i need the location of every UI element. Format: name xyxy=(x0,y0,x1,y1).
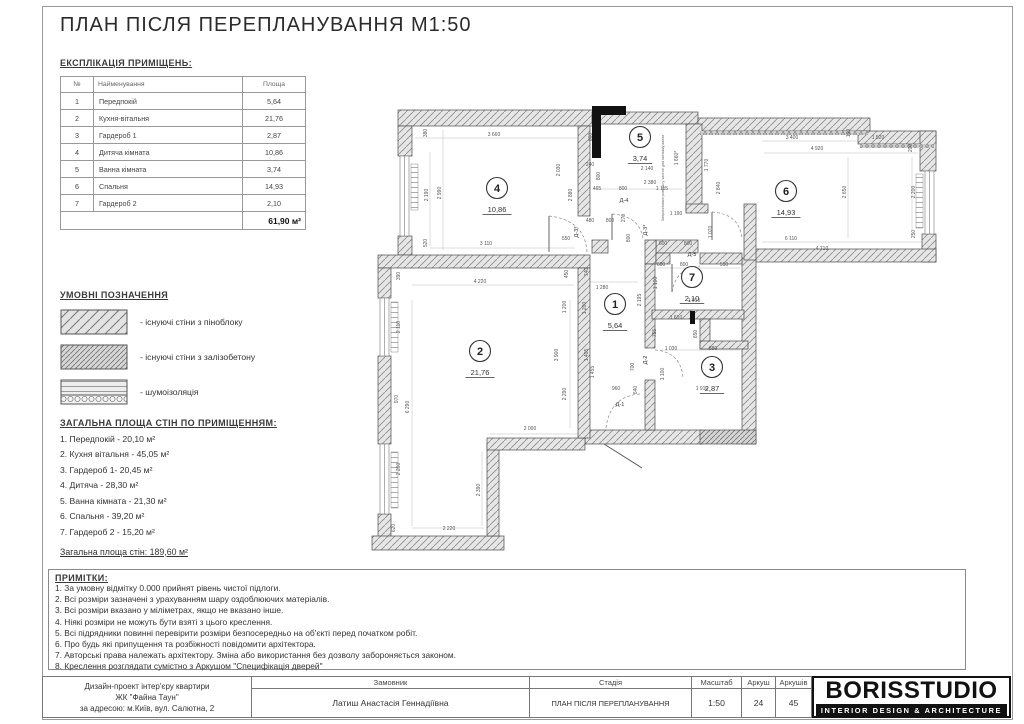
dimension-label: 3 110 xyxy=(480,241,492,247)
room-label: 53,74 xyxy=(628,127,652,164)
dimension-label: 200 xyxy=(908,144,914,153)
dimension-label: 800 xyxy=(684,241,693,247)
dimension-label: 620 xyxy=(391,524,397,533)
sheets-label: Аркушів xyxy=(776,677,811,689)
dimension-label: 250 xyxy=(911,230,917,239)
dimension-label: 860 xyxy=(588,133,594,142)
room-area: 3,74 xyxy=(633,154,648,163)
room-number: 4 xyxy=(494,183,501,195)
wall-areas-section: ЗАГАЛЬНА ПЛОЩА СТІН ПО ПРИМІЩЕННЯМ: 1. П… xyxy=(60,418,330,557)
room-area: 21,76 xyxy=(471,368,490,377)
note-line: 1. За умовну відмітку 0.000 прийнят ріве… xyxy=(55,583,959,594)
room-label: 15,64 xyxy=(603,294,627,331)
client-label: Замовник xyxy=(252,677,529,689)
dimension-label: 880 xyxy=(709,346,718,352)
dimension-label: 2 000 xyxy=(524,426,537,432)
note-line: 2. Всі розміри зазначені з урахуванням ш… xyxy=(55,594,959,605)
sheet-label: Аркуш xyxy=(742,677,775,689)
note-line: 6. Про будь які припущення та розбіжност… xyxy=(55,639,959,650)
room-number: 2 xyxy=(477,346,483,358)
client-cell: Замовник Латиш Анастасія Геннадіївна xyxy=(252,676,530,718)
dimension-label: 1 455 xyxy=(590,366,596,379)
room-label: 614,93 xyxy=(772,181,801,218)
dimension-label: 2 990 xyxy=(437,187,443,200)
dimension-label: 800 xyxy=(596,172,602,181)
table-row: 3Гардероб 12,87 xyxy=(61,127,306,144)
door-label: Д-5 xyxy=(688,252,697,258)
sheets-total-cell: Аркушів 45 xyxy=(776,676,812,718)
dimension-label: 450 xyxy=(564,270,570,279)
room-number: 1 xyxy=(612,299,618,311)
dimension-label: 1 520 xyxy=(872,135,885,141)
client-value: Латиш Анастасія Геннадіївна xyxy=(252,689,529,717)
dimension-label: 1 610 xyxy=(670,315,683,321)
stage-label: Стадія xyxy=(530,677,691,689)
sheets-value: 45 xyxy=(776,689,811,717)
dimension-label: 1 910 xyxy=(688,298,701,304)
door-label: Д-4 xyxy=(620,198,629,204)
room-area: 10,86 xyxy=(488,205,507,214)
sheet-number-cell: Аркуш 24 xyxy=(742,676,776,718)
dimension-label: 550 xyxy=(562,236,571,242)
room-number: 5 xyxy=(637,132,643,144)
dimension-label: 240 xyxy=(586,162,595,168)
dimension-label: 600 xyxy=(659,241,668,247)
dimension-label: 2 110 xyxy=(396,321,402,333)
dimension-label: 6 110 xyxy=(785,236,797,242)
table-row: 7Гардероб 22,10 xyxy=(61,195,306,212)
note-line: 3. Всі розміри вказано у міліметрах, якщ… xyxy=(55,605,959,616)
dimension-label: 1 280 xyxy=(596,285,609,291)
page-title: ПЛАН ПІСЛЯ ПЕРЕПЛАНУВАННЯ М1:50 xyxy=(60,14,472,37)
dimension-label: 3 400 xyxy=(786,135,799,141)
project-line: Дизайн-проект інтер'єру квартири xyxy=(84,681,209,692)
column-header: Площа xyxy=(243,77,306,93)
dimension-label: 2 290 xyxy=(562,388,568,401)
dimension-label: 2 195 xyxy=(637,294,643,307)
dimension-label: 510 xyxy=(720,262,729,268)
total-area: 61,90 м² xyxy=(243,212,306,230)
wall-areas-heading: ЗАГАЛЬНА ПЛОЩА СТІН ПО ПРИМІЩЕННЯМ: xyxy=(60,418,330,428)
dimension-label: 755 xyxy=(652,329,658,338)
dimension-label: 4 920 xyxy=(811,146,824,152)
wall-area-item: 4. Дитяча - 28,30 м² xyxy=(60,480,330,490)
note-line: 8. Креслення розглядати сумістно з Аркуш… xyxy=(55,661,959,672)
dimension-label: 1 910 xyxy=(696,386,709,392)
note-line: 4. Ніякі розміри не можуть бути взяті з … xyxy=(55,617,959,628)
dimension-label: 1 030 xyxy=(665,346,678,352)
floor-plan: 15,64221,7632,87410,8653,74614,9372,103 … xyxy=(365,90,977,572)
wall-area-item: 5. Ванна кімната - 21,30 м² xyxy=(60,496,330,506)
dimension-label: 390 xyxy=(396,272,402,281)
door-label: Д-3* xyxy=(643,224,649,236)
room-label: 221,76 xyxy=(466,341,495,378)
room-number: 3 xyxy=(709,362,715,374)
wall-area-item: 3. Гардероб 1- 20,45 м² xyxy=(60,465,330,475)
room-area: 14,93 xyxy=(777,208,796,217)
table-row: 6Спальня14,93 xyxy=(61,178,306,195)
title-block: Дизайн-проект інтер'єру квартириЖК "Файн… xyxy=(42,676,812,718)
legend-swatch-concrete xyxy=(60,344,128,370)
stage-cell: Стадія ПЛАН ПІСЛЯ ПЕРЕПЛАНУВАННЯ xyxy=(530,676,692,718)
logo-title: BORISSTUDIO xyxy=(814,678,1009,704)
table-total-row: 61,90 м² xyxy=(61,212,306,230)
legend-item: - існуючі стіни з піноблоку xyxy=(60,308,255,335)
table-row: 4Дитяча кімната10,86 xyxy=(61,144,306,161)
dimension-label: 2 030 xyxy=(556,164,562,177)
dimension-label: 600 xyxy=(657,262,666,268)
dimension-label: 480 xyxy=(586,218,595,224)
dimension-label: 1 770 xyxy=(704,159,710,172)
legend-section: УМОВНІ ПОЗНАЧЕННЯ - існуючі стіни з піно… xyxy=(60,290,255,405)
door-label: Д-1 xyxy=(616,402,625,408)
studio-logo: BORISSTUDIO INTERIOR DESIGN & ARCHITECTU… xyxy=(812,676,1011,718)
project-line: за адресою: м.Київ, вул. Салютна, 2 xyxy=(80,703,214,714)
dimension-label: 1 100 xyxy=(660,368,666,381)
project-line: ЖК "Файна Таун" xyxy=(115,692,178,703)
notes-box: ПРИМІТКИ: 1. За умовну відмітку 0.000 пр… xyxy=(48,569,966,670)
dimension-label: 1 190 xyxy=(670,211,683,217)
wall-area-item: 1. Передпокій - 20,10 м² xyxy=(60,434,330,444)
dimension-label: 4 710 xyxy=(816,246,829,252)
dimension-label: 380 xyxy=(423,129,429,138)
wall-area-item: 2. Кухня вітальня - 45,05 м² xyxy=(60,449,330,459)
wall-area-item: 7. Гардероб 2 - 15,20 м² xyxy=(60,527,330,537)
table-row: 5Ванна кімната3,74 xyxy=(61,161,306,178)
dimension-label: 1 100 xyxy=(653,277,659,290)
logo-subtitle: INTERIOR DESIGN & ARCHITECTURE xyxy=(816,704,1007,716)
room-number: 7 xyxy=(689,272,695,284)
dimension-label: 6 290 xyxy=(405,401,411,414)
dimension-label: 700 xyxy=(630,363,636,372)
legend-swatch-pinoblock xyxy=(60,309,128,335)
dimension-label: 4 220 xyxy=(474,279,487,285)
dimension-label: 2 200 xyxy=(911,186,917,199)
legend-swatch-soundproof xyxy=(60,379,128,405)
dimension-label: 800 xyxy=(626,234,632,243)
dimension-label: 800 xyxy=(619,186,628,192)
dimension-label: 2 840 xyxy=(716,182,722,195)
note-line: 7. Авторські права належать архітектору.… xyxy=(55,650,959,661)
legend-label: - шумоізоляція xyxy=(140,387,199,397)
table-row: 2Кухня-вітальня21,76 xyxy=(61,110,306,127)
dimension-label: 1 200 xyxy=(562,301,568,314)
dimension-label: 3 900 xyxy=(554,349,560,362)
project-info-cell: Дизайн-проект інтер'єру квартириЖК "Файн… xyxy=(42,676,252,718)
sheet-value: 24 xyxy=(742,689,775,717)
note-line: 5. Всі підрядники повинні перевірити роз… xyxy=(55,628,959,639)
legend-label: - існуючі стіни з залізобетону xyxy=(140,352,255,362)
dimension-label: 3 660 xyxy=(488,132,501,138)
scale-label: Масштаб xyxy=(692,677,741,689)
dimension-label: 465 xyxy=(593,186,602,192)
column-header: Найменування xyxy=(94,77,243,93)
room-label: 410,86 xyxy=(483,178,512,215)
stage-value: ПЛАН ПІСЛЯ ПЕРЕПЛАНУВАННЯ xyxy=(530,689,691,717)
door-label: Д-2 xyxy=(643,356,649,365)
explication-section: ЕКСПЛІКАЦІЯ ПРИМІЩЕНЬ: №НайменуванняПлощ… xyxy=(60,58,306,230)
wall-areas-total: Загальна площа стін: 189,60 м² xyxy=(60,547,330,557)
dimension-label: 2 220 xyxy=(443,526,456,532)
dimension-label: 800 xyxy=(606,218,615,224)
door-label: Д-3* xyxy=(574,226,580,238)
dimension-label: 650 xyxy=(693,330,699,339)
column-header: № xyxy=(61,77,94,93)
legend-label: - існуючі стіни з піноблоку xyxy=(140,317,243,327)
dimension-label: 1 070 xyxy=(708,226,714,239)
dimension-label: 960 xyxy=(612,386,621,392)
dimension-label: 2 880 xyxy=(568,189,574,202)
dimension-label: 190 xyxy=(846,129,852,138)
table-row: 1Передпокій5,64 xyxy=(61,93,306,110)
explication-heading: ЕКСПЛІКАЦІЯ ПРИМІЩЕНЬ: xyxy=(60,58,306,68)
dimension-label: 2 190 xyxy=(424,189,430,202)
dimension-label: 800 xyxy=(680,262,689,268)
dimension-label: 740 xyxy=(584,268,590,277)
dimension-label: 270 xyxy=(621,214,627,223)
dimension-label: 2 650 xyxy=(842,186,848,199)
dimension-label: 2 140 xyxy=(641,166,654,172)
legend-item: - шумоізоляція xyxy=(60,378,255,405)
dimension-label: 1 660* xyxy=(674,151,680,166)
plan-annotation: Запроектовані розміри у чистоті для монт… xyxy=(661,135,665,222)
room-area: 5,64 xyxy=(608,321,623,330)
dimension-label: 2 390 xyxy=(476,484,482,497)
explication-table: №НайменуванняПлоща 1Передпокій5,642Кухня… xyxy=(60,76,306,230)
dimension-label: 2 380 xyxy=(644,180,657,186)
room-number: 6 xyxy=(783,186,789,198)
notes-heading: ПРИМІТКИ: xyxy=(55,573,959,583)
scale-value: 1:50 xyxy=(692,689,741,717)
drawing-sheet: ПЛАН ПІСЛЯ ПЕРЕПЛАНУВАННЯ М1:50 ЕКСПЛІКА… xyxy=(0,0,1024,724)
dimension-label: 640 xyxy=(633,386,639,395)
dimension-label: 970 xyxy=(394,395,400,404)
legend-heading: УМОВНІ ПОЗНАЧЕННЯ xyxy=(60,290,255,300)
dimension-label: 520 xyxy=(423,239,429,248)
dimension-label: 2 200 xyxy=(396,463,402,476)
dimension-label: 1 405 xyxy=(584,349,590,362)
dimension-label: 1 200 xyxy=(582,302,588,315)
wall-area-item: 6. Спальня - 39,20 м² xyxy=(60,511,330,521)
scale-cell: Масштаб 1:50 xyxy=(692,676,742,718)
legend-item: - існуючі стіни з залізобетону xyxy=(60,343,255,370)
walls-concrete xyxy=(700,430,756,444)
